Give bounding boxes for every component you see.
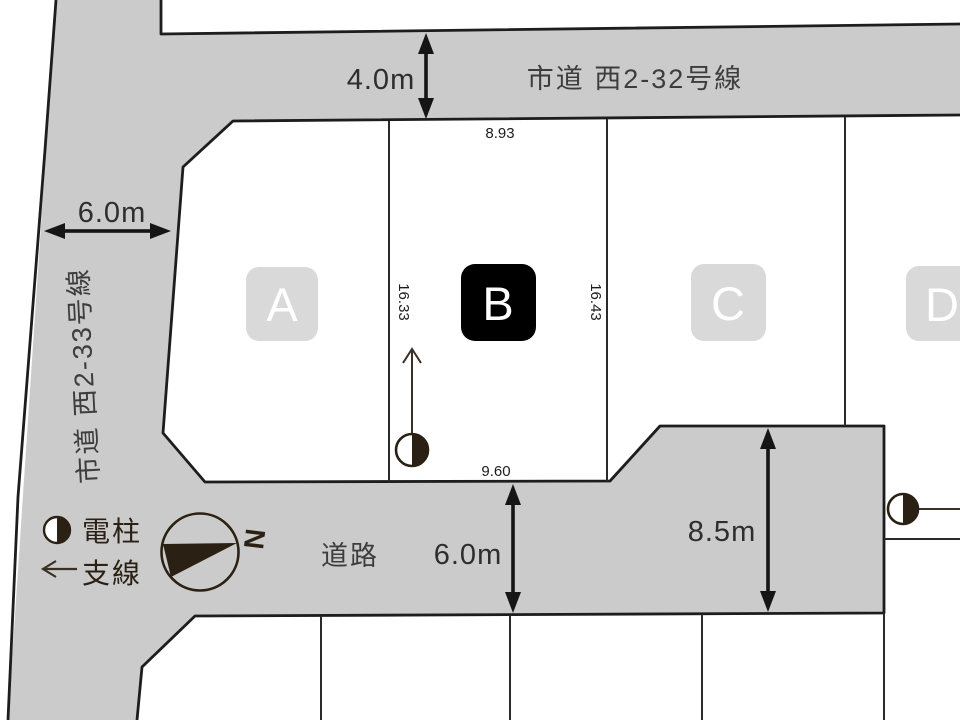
dim-plot-b-left: 16.33 <box>395 283 412 321</box>
plot-badge-a[interactable]: A <box>246 267 318 341</box>
dim-plot-b-right: 16.43 <box>587 283 604 321</box>
legend-guy-wire-label: 支線 <box>82 558 142 589</box>
site-plan-canvas: 電柱 支線 N 市道 西2-32号線 4.0m 6.0m 市道 西2-33号線 … <box>0 0 960 720</box>
plot-badge-a-label: A <box>266 278 298 331</box>
dim-plot-b-top: 8.93 <box>485 125 514 142</box>
top-road-width: 4.0m <box>347 64 415 96</box>
utility-pole-icon-plot-b <box>396 349 428 466</box>
left-road-width: 6.0m <box>78 197 146 229</box>
east-area-width: 8.5m <box>688 516 756 548</box>
plot-badge-b[interactable]: B <box>461 264 536 341</box>
site-plan: 電柱 支線 N 市道 西2-32号線 4.0m 6.0m 市道 西2-33号線 … <box>0 0 960 720</box>
bottom-road-width: 6.0m <box>434 539 502 571</box>
plot-badge-d[interactable]: D <box>906 266 960 341</box>
legend-utility-pole-label: 電柱 <box>82 516 142 547</box>
plot-badge-c[interactable]: C <box>691 264 766 341</box>
utility-pole-icon-east <box>888 494 960 524</box>
top-road-name: 市道 西2-32号線 <box>527 64 744 94</box>
compass-north-label: N <box>238 527 271 551</box>
plot-badge-d-label: D <box>925 278 959 331</box>
dim-plot-b-bottom: 9.60 <box>481 463 510 480</box>
plot-division-lines <box>321 117 960 720</box>
utility-pole-legend-icon <box>44 517 70 543</box>
bottom-road-name: 道路 <box>321 541 379 571</box>
plot-block-outline <box>137 115 960 720</box>
plot-badge-c-label: C <box>711 277 745 330</box>
plot-badge-b-label: B <box>482 277 513 330</box>
